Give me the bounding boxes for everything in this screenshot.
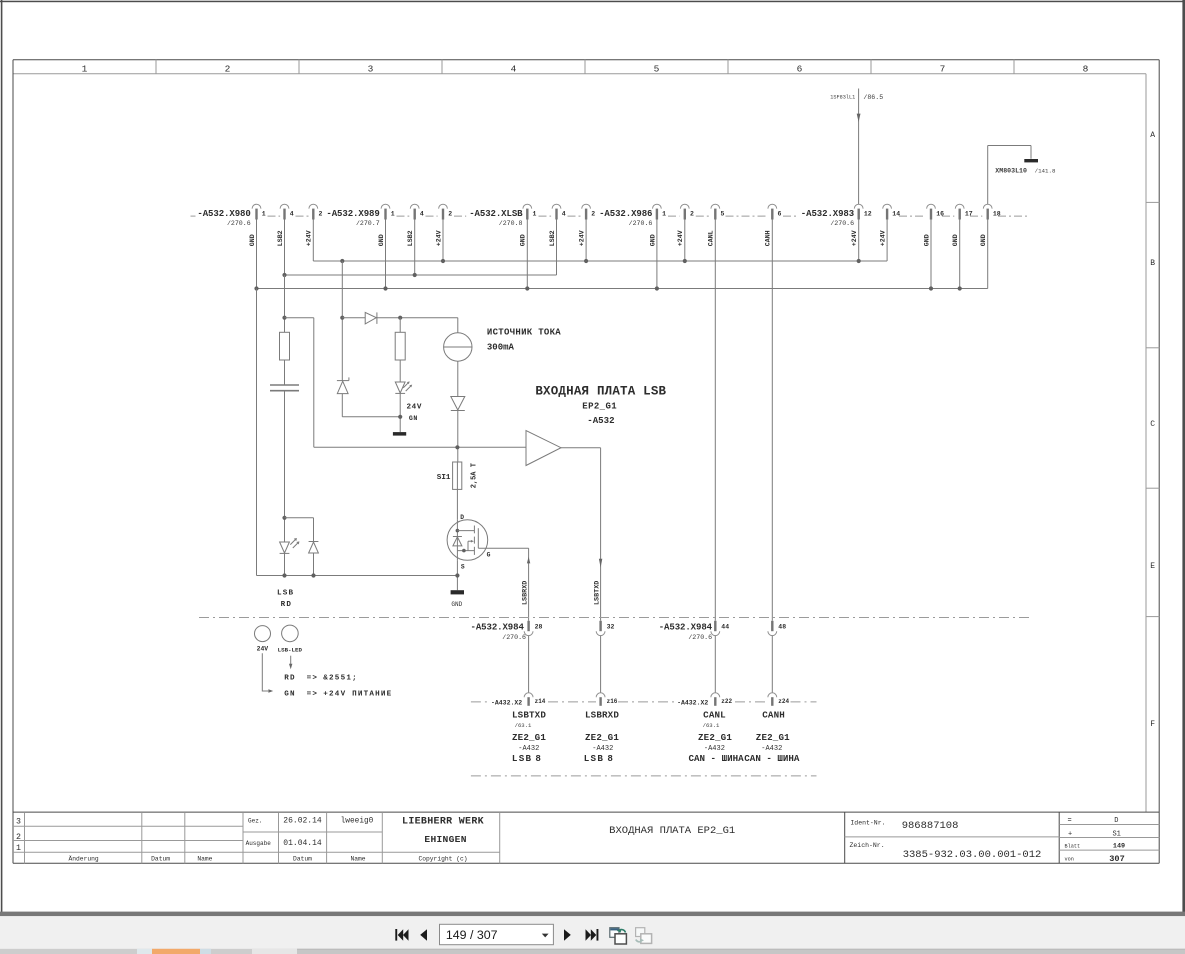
svg-text:4: 4 xyxy=(420,210,424,217)
svg-text:EHINGEN: EHINGEN xyxy=(424,834,466,845)
svg-text:2: 2 xyxy=(319,210,323,217)
svg-text:RD: RD xyxy=(281,601,293,609)
svg-text:LSB: LSB xyxy=(277,590,294,598)
svg-text:CANL: CANL xyxy=(703,709,726,720)
svg-text:/270.6: /270.6 xyxy=(502,634,526,641)
svg-text:F: F xyxy=(1150,720,1155,729)
svg-text:16: 16 xyxy=(936,210,944,217)
svg-text:ZE2_G1: ZE2_G1 xyxy=(512,732,546,743)
svg-text:+24V: +24V xyxy=(579,230,586,246)
svg-text:/63.1: /63.1 xyxy=(703,722,720,729)
svg-text:+24V: +24V xyxy=(880,230,887,246)
svg-text:LSB2: LSB2 xyxy=(277,230,284,246)
svg-text:=>: => xyxy=(307,675,319,683)
svg-text:6: 6 xyxy=(797,63,803,74)
svg-text:2: 2 xyxy=(225,63,231,74)
svg-text:6: 6 xyxy=(778,210,782,217)
svg-text:E: E xyxy=(1150,562,1155,571)
svg-text:SI1: SI1 xyxy=(437,474,451,482)
svg-text:ZE2_G1: ZE2_G1 xyxy=(585,732,619,743)
svg-text:-A432: -A432 xyxy=(518,745,539,753)
svg-text:1: 1 xyxy=(533,210,537,217)
svg-text:1: 1 xyxy=(662,210,666,217)
svg-text:2: 2 xyxy=(690,210,694,217)
svg-text:ВХОДНАЯ ПЛАТА LSB: ВХОДНАЯ ПЛАТА LSB xyxy=(535,385,666,399)
svg-text:LSBRXD: LSBRXD xyxy=(585,709,619,720)
svg-text:S1: S1 xyxy=(1112,831,1120,839)
svg-text:28: 28 xyxy=(535,624,543,631)
svg-text:/270.7: /270.7 xyxy=(356,220,380,227)
svg-text:8: 8 xyxy=(1083,63,1089,74)
svg-text:G: G xyxy=(487,551,491,558)
svg-text:307: 307 xyxy=(1109,854,1124,864)
svg-text:Änderung: Änderung xyxy=(68,855,98,863)
svg-text:/270.8: /270.8 xyxy=(499,220,523,227)
svg-text:B: B xyxy=(1150,259,1155,268)
svg-text:LSB: LSB xyxy=(512,753,532,764)
svg-text:26.02.14: 26.02.14 xyxy=(283,817,322,826)
svg-text:A: A xyxy=(1150,131,1155,140)
svg-text:17: 17 xyxy=(965,210,973,217)
svg-text:5: 5 xyxy=(654,63,660,74)
svg-text:=>: => xyxy=(307,690,319,698)
svg-text:48: 48 xyxy=(778,624,786,631)
svg-text:8: 8 xyxy=(535,753,541,764)
svg-text:-A432.X2: -A432.X2 xyxy=(677,700,708,707)
svg-text:+24V: +24V xyxy=(677,230,684,246)
svg-text:+24V ПИТАНИЕ: +24V ПИТАНИЕ xyxy=(323,690,392,698)
svg-text:LSBTXD: LSBTXD xyxy=(593,581,601,605)
svg-text:GND: GND xyxy=(923,234,930,246)
svg-text:ZE2_G1: ZE2_G1 xyxy=(698,732,732,743)
svg-text:z22: z22 xyxy=(721,698,732,705)
svg-text:GN: GN xyxy=(409,415,418,422)
svg-text:Ident-Nr.: Ident-Nr. xyxy=(850,820,885,827)
svg-text:XM803L10: XM803L10 xyxy=(995,168,1027,175)
svg-text:3: 3 xyxy=(16,817,21,826)
svg-text:z14: z14 xyxy=(535,698,546,705)
svg-text:von: von xyxy=(1065,856,1074,862)
svg-text:2,5A T: 2,5A T xyxy=(471,463,479,488)
svg-text:LIEBHERR WERK: LIEBHERR WERK xyxy=(402,816,484,827)
svg-text:1: 1 xyxy=(82,63,88,74)
svg-text:ВХОДНАЯ ПЛАТА EP2_G1: ВХОДНАЯ ПЛАТА EP2_G1 xyxy=(609,825,735,837)
svg-text:/270.6: /270.6 xyxy=(227,220,251,227)
svg-text:GND: GND xyxy=(520,234,527,246)
svg-text:-A532: -A532 xyxy=(587,415,614,426)
svg-text:Datum: Datum xyxy=(293,856,312,863)
svg-text:7: 7 xyxy=(940,63,946,74)
svg-text:2: 2 xyxy=(591,210,595,217)
svg-text:-A532.X980: -A532.X980 xyxy=(197,208,250,219)
svg-text:149 / 307: 149 / 307 xyxy=(446,928,498,942)
svg-text:-A432.X2: -A432.X2 xyxy=(491,700,522,707)
svg-text:CANH: CANH xyxy=(762,709,785,720)
svg-text:ИСТОЧНИК ТОКА: ИСТОЧНИК ТОКА xyxy=(487,328,561,338)
svg-text:44: 44 xyxy=(721,624,729,631)
svg-text:-A432: -A432 xyxy=(704,745,725,753)
svg-text:LSBTXD: LSBTXD xyxy=(512,709,546,720)
svg-text:1: 1 xyxy=(16,844,21,853)
svg-text:+24V: +24V xyxy=(306,230,313,246)
svg-text:Name: Name xyxy=(197,856,212,863)
svg-text:D: D xyxy=(460,514,464,521)
svg-text:z24: z24 xyxy=(778,698,789,705)
svg-text:-A532.X989: -A532.X989 xyxy=(326,208,379,219)
svg-text:LSB2: LSB2 xyxy=(407,230,414,246)
svg-text:Name: Name xyxy=(350,856,365,863)
svg-text:CAN - ШИНА: CAN - ШИНА xyxy=(744,753,800,764)
svg-text:S: S xyxy=(461,563,465,570)
svg-text:2: 2 xyxy=(16,833,21,842)
svg-text:3: 3 xyxy=(368,63,374,74)
svg-text:3385-932.03.00.001-012: 3385-932.03.00.001-012 xyxy=(903,849,1042,861)
svg-text:-A532.X984: -A532.X984 xyxy=(659,622,713,633)
svg-text:=: = xyxy=(1068,817,1072,825)
svg-text:149: 149 xyxy=(1113,843,1125,851)
svg-text:5: 5 xyxy=(721,210,725,217)
svg-text:8: 8 xyxy=(607,753,613,764)
svg-text:24V: 24V xyxy=(257,646,269,653)
svg-text:GND: GND xyxy=(952,234,959,246)
svg-text:24V: 24V xyxy=(407,403,422,411)
svg-text:01.04.14: 01.04.14 xyxy=(283,839,322,848)
svg-text:986887108: 986887108 xyxy=(902,820,959,832)
svg-text:CAN - ШИНА: CAN - ШИНА xyxy=(689,753,745,764)
svg-text:LSBRXD: LSBRXD xyxy=(522,581,530,605)
svg-text:&2551;: &2551; xyxy=(323,675,358,683)
svg-text:4: 4 xyxy=(290,210,294,217)
svg-text:+24V: +24V xyxy=(435,230,442,246)
svg-text:Blatt: Blatt xyxy=(1065,844,1081,850)
svg-text:GND: GND xyxy=(378,234,385,246)
svg-text:EP2_G1: EP2_G1 xyxy=(582,401,617,411)
svg-text:GN: GN xyxy=(284,690,296,698)
svg-text:-A532.X984: -A532.X984 xyxy=(471,622,525,633)
svg-text:Gez.: Gez. xyxy=(248,818,262,825)
svg-text:GND: GND xyxy=(451,601,462,608)
svg-text:1: 1 xyxy=(391,210,395,217)
svg-text:GND: GND xyxy=(249,234,256,246)
svg-text:-A532.X986: -A532.X986 xyxy=(599,208,652,219)
svg-text:RD: RD xyxy=(284,675,296,683)
svg-text:Copyright (c): Copyright (c) xyxy=(418,856,467,863)
svg-text:/141.8: /141.8 xyxy=(1035,168,1056,175)
svg-text:lweeig0: lweeig0 xyxy=(341,818,374,826)
svg-text:Zeich-Nr.: Zeich-Nr. xyxy=(850,842,885,849)
svg-text:Ausgabe: Ausgabe xyxy=(246,840,272,847)
svg-text:LSB: LSB xyxy=(584,753,604,764)
svg-text:/86.5: /86.5 xyxy=(863,94,883,101)
svg-text:-A532.X983: -A532.X983 xyxy=(801,208,854,219)
svg-text:CANL: CANL xyxy=(708,230,715,246)
svg-text:LSB-LED: LSB-LED xyxy=(278,646,303,653)
svg-text:1: 1 xyxy=(262,210,266,217)
svg-text:14: 14 xyxy=(892,210,900,217)
svg-text:CANH: CANH xyxy=(765,230,772,246)
svg-text:D: D xyxy=(1114,817,1118,825)
svg-text:GND: GND xyxy=(649,234,656,246)
svg-text:LSB2: LSB2 xyxy=(549,230,556,246)
svg-text:-A432: -A432 xyxy=(761,745,782,753)
svg-text:+: + xyxy=(1068,831,1072,839)
svg-text:ZE2_G1: ZE2_G1 xyxy=(756,732,790,743)
svg-text:+24V: +24V xyxy=(851,230,858,246)
svg-text:/63.1: /63.1 xyxy=(515,722,532,729)
svg-text:32: 32 xyxy=(607,624,615,631)
svg-text:4: 4 xyxy=(511,63,517,74)
svg-text:C: C xyxy=(1150,420,1155,429)
svg-text:4: 4 xyxy=(562,210,566,217)
svg-text:-A532.XLSB: -A532.XLSB xyxy=(469,208,523,219)
svg-text:/270.6: /270.6 xyxy=(629,220,653,227)
svg-text:2: 2 xyxy=(448,210,452,217)
svg-text:z16: z16 xyxy=(607,698,618,705)
svg-text:18: 18 xyxy=(993,210,1001,217)
svg-text:12: 12 xyxy=(864,210,872,217)
svg-text:Datum: Datum xyxy=(151,856,170,863)
svg-text:-A432: -A432 xyxy=(592,745,613,753)
svg-text:300mA: 300mA xyxy=(487,343,515,353)
svg-text:1SF83lL1: 1SF83lL1 xyxy=(830,95,855,101)
svg-text:GND: GND xyxy=(980,234,987,246)
svg-text:/270.6: /270.6 xyxy=(830,220,854,227)
svg-text:/270.6: /270.6 xyxy=(688,634,712,641)
